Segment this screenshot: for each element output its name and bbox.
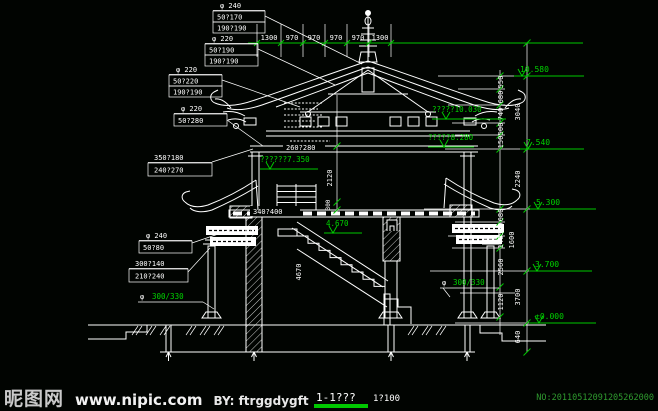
label-g2: 210?240 — [135, 273, 165, 281]
vdim-3040: 3040 — [514, 104, 522, 121]
label-b1: φ 220 — [212, 35, 233, 43]
label-b3: 190?190 — [209, 58, 239, 66]
foundation — [88, 325, 546, 361]
elevation-8280: ?????8.280 — [428, 133, 474, 142]
label-a2: 50?170 — [217, 14, 242, 22]
label-e2: 240?270 — [154, 167, 184, 175]
vdim-300: 300 — [325, 199, 332, 210]
vdim-640: 640 — [514, 331, 522, 344]
label-b2: 50?190 — [209, 47, 234, 55]
label-d1: φ 220 — [181, 105, 202, 113]
drawing-title: 1-1??? 1?100 — [314, 391, 400, 408]
vdim-150: 150 — [497, 136, 505, 149]
top-dim-3: 970 — [330, 34, 343, 42]
vdim-550: 550 — [497, 76, 505, 89]
vdim-740: 740 — [497, 108, 505, 121]
vdim-500-lower: 500 — [497, 223, 505, 236]
vdim-680-lower: 680 — [497, 209, 505, 222]
vdim-680-upper: 680 — [497, 91, 505, 104]
vdim-1120: 1120 — [497, 294, 505, 311]
right-column-label-size: 300/330 — [453, 278, 485, 287]
upper-roof — [211, 61, 526, 129]
watermark: 昵图网 www.nipic.com BY: ftrggdygft — [4, 384, 309, 411]
section-title: 1-1??? — [316, 391, 356, 404]
label-g1: 300?140 — [135, 260, 165, 268]
vdim-3700: 3700 — [514, 289, 522, 306]
label-c3: 190?190 — [173, 89, 203, 97]
label-c1: φ 220 — [176, 66, 197, 74]
label-a3: 190?190 — [217, 25, 247, 33]
label-d2: 50?280 — [178, 117, 203, 125]
watermark-site-url: www.nipic.com — [75, 391, 202, 409]
label-f2: 50?80 — [143, 244, 164, 252]
top-dim-0: 1300 — [261, 34, 278, 42]
top-dim-5: 1300 — [372, 34, 389, 42]
top-dimension-chain: 1300 970 970 970 970 1300 — [248, 24, 583, 57]
vdim-4670: 4670 — [295, 264, 303, 281]
left-column-label-prefix: φ — [140, 293, 144, 301]
watermark-site-name: 昵图网 — [4, 384, 64, 411]
label-e1: 350?180 — [154, 154, 184, 162]
right-column-label-prefix: φ — [442, 279, 446, 287]
upper-beam-size-label: 260?280 — [286, 144, 316, 152]
elevation-10030: ?????10.030 — [432, 105, 482, 114]
elevation-4670: 4.670 — [326, 219, 349, 228]
left-column-label-size: 300/330 — [152, 292, 184, 301]
tiny-annotation-text-cluster — [284, 103, 330, 141]
top-dim-4: 970 — [352, 34, 365, 42]
label-a1: φ 240 — [220, 2, 241, 10]
roof-structure — [266, 68, 470, 136]
vdim-2240: 2240 — [514, 171, 522, 188]
top-dim-1: 970 — [286, 34, 299, 42]
elevation-3700: 3.700 — [535, 260, 559, 269]
section-drawing: 340?400 260?280 — [0, 0, 658, 411]
cad-drawing-canvas: 340?400 260?280 — [0, 0, 658, 411]
elevation-0000: ±0.000 — [535, 312, 564, 321]
floor-beam-size-label: 340?400 — [253, 208, 283, 216]
elevation-10580: 10.580 — [520, 65, 549, 74]
vdim-1600: 1600 — [508, 232, 516, 249]
vdim-500-upper: 500 — [497, 123, 505, 136]
watermark-credit: BY: ftrggdygft — [213, 394, 308, 408]
section-scale: 1?100 — [373, 394, 400, 404]
serial-number: NO:20110512091205262000 — [536, 393, 654, 403]
elevation-7540: 7.540 — [526, 138, 550, 147]
elevation-5300: 5.300 — [536, 198, 560, 207]
vdim-2560: 2560 — [497, 259, 505, 276]
label-f1: φ 240 — [146, 232, 167, 240]
column-size-labels: φ 300/330 φ 300/330 — [138, 278, 499, 309]
vdim-140: 140 — [497, 236, 505, 249]
vdim-2120: 2120 — [326, 170, 334, 187]
label-c2: 50?220 — [173, 78, 198, 86]
right-dimension-lines: 550 680 740 500 150 3040 2240 680 500 14… — [424, 40, 533, 356]
elevation-7350: ??????7.350 — [260, 155, 310, 164]
title-underline — [314, 404, 368, 408]
elevation-markers: 10.580 7.540 5.300 3.700 ±0.000 ?????10.… — [260, 65, 596, 323]
